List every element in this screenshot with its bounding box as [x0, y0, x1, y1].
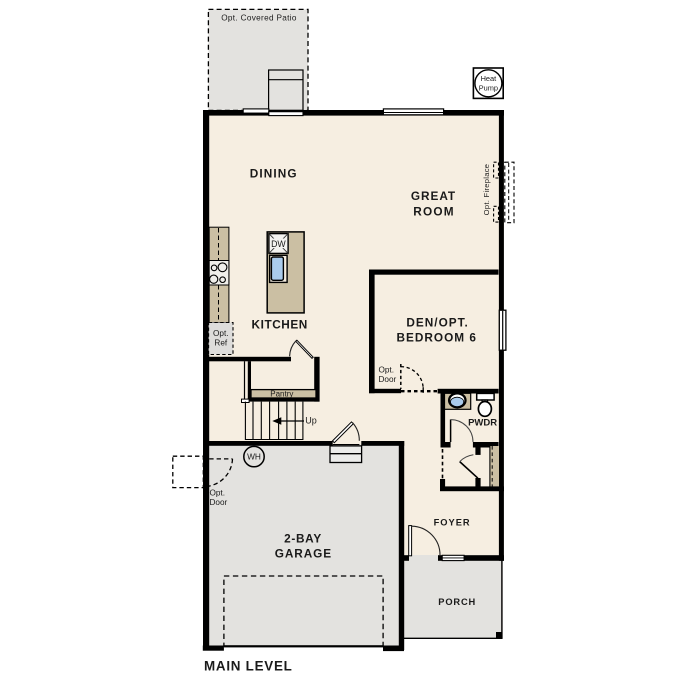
svg-text:Heat: Heat — [481, 74, 497, 83]
svg-text:DEN/OPT.: DEN/OPT. — [406, 316, 468, 330]
svg-text:FOYER: FOYER — [434, 518, 471, 528]
svg-text:Opt.: Opt. — [210, 488, 225, 497]
svg-text:Opt. Covered Patio: Opt. Covered Patio — [221, 13, 297, 22]
svg-text:Opt. Fireplace: Opt. Fireplace — [482, 164, 491, 216]
svg-text:Opt.: Opt. — [379, 366, 394, 375]
svg-text:BEDROOM 6: BEDROOM 6 — [396, 331, 476, 345]
svg-text:Ref: Ref — [214, 338, 227, 347]
svg-text:GARAGE: GARAGE — [275, 547, 332, 561]
svg-text:Door: Door — [379, 375, 397, 384]
svg-text:Pump: Pump — [479, 83, 498, 92]
svg-text:WH: WH — [247, 452, 261, 462]
svg-text:ROOM: ROOM — [413, 205, 455, 219]
svg-text:Opt.: Opt. — [213, 329, 228, 338]
svg-text:PWDR: PWDR — [468, 418, 497, 429]
svg-text:PORCH: PORCH — [438, 597, 476, 607]
svg-text:GREAT: GREAT — [411, 189, 456, 203]
svg-text:Pantry: Pantry — [270, 389, 293, 398]
svg-text:KITCHEN: KITCHEN — [252, 318, 308, 332]
svg-text:Door: Door — [210, 498, 228, 507]
svg-text:MAIN LEVEL: MAIN LEVEL — [204, 658, 293, 673]
svg-text:Up: Up — [305, 416, 317, 426]
svg-text:2-BAY: 2-BAY — [284, 532, 322, 546]
svg-text:DW: DW — [271, 239, 286, 249]
svg-text:DINING: DINING — [250, 167, 298, 181]
